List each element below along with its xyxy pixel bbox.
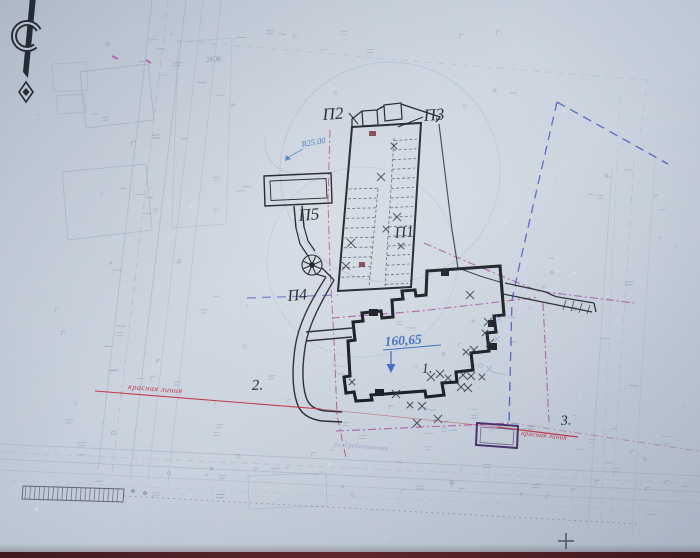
site-plan-photo: 160,65 R25.00 П2 П3 П1 П5 П4 1. 2. 3. 2К…	[0, 0, 700, 558]
photo-edge	[0, 552, 700, 558]
vignette	[0, 0, 700, 558]
